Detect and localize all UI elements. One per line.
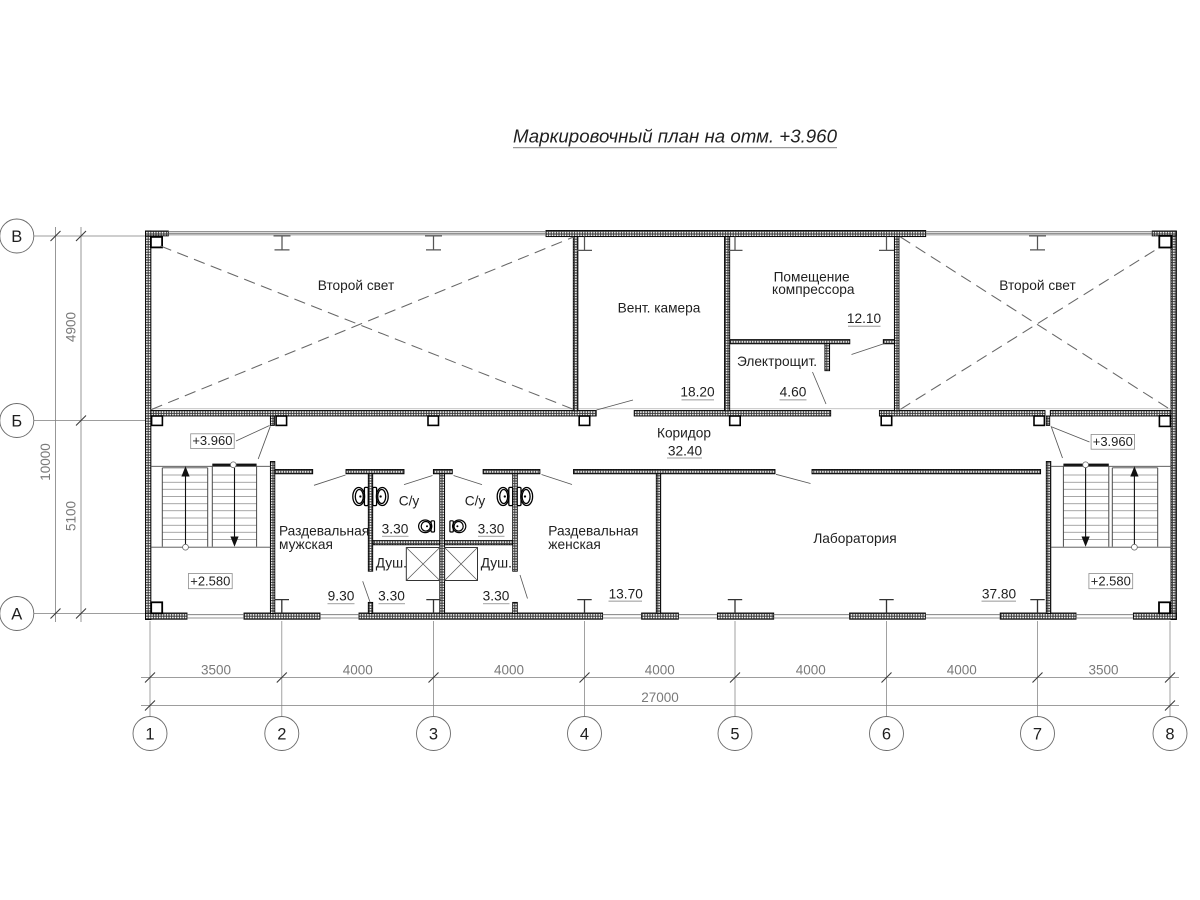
svg-text:2: 2 — [277, 726, 286, 744]
svg-text:А: А — [11, 606, 22, 624]
svg-text:37.80: 37.80 — [982, 586, 1017, 601]
svg-text:+2.580: +2.580 — [190, 573, 230, 588]
svg-text:+3.960: +3.960 — [1093, 434, 1133, 449]
svg-text:С/у: С/у — [399, 494, 420, 509]
svg-text:1: 1 — [145, 726, 154, 744]
svg-text:5100: 5100 — [64, 501, 79, 531]
svg-text:5: 5 — [730, 726, 739, 744]
svg-text:7: 7 — [1033, 726, 1042, 744]
svg-text:+3.960: +3.960 — [192, 433, 232, 448]
svg-text:Лаборатория: Лаборатория — [813, 531, 896, 546]
svg-text:4900: 4900 — [64, 312, 79, 342]
svg-text:3500: 3500 — [1088, 663, 1118, 678]
svg-text:Коридор: Коридор — [657, 425, 711, 440]
svg-text:Б: Б — [11, 413, 22, 431]
svg-text:Маркировочный план на отм. +3.: Маркировочный план на отм. +3.960 — [513, 126, 838, 147]
svg-text:женская: женская — [548, 537, 601, 552]
svg-text:Второй свет: Второй свет — [318, 278, 395, 293]
svg-text:3.30: 3.30 — [478, 521, 505, 536]
svg-text:10000: 10000 — [38, 443, 53, 481]
svg-text:Душ.: Душ. — [376, 555, 407, 570]
svg-text:Второй свет: Второй свет — [999, 278, 1076, 293]
svg-text:27000: 27000 — [641, 690, 679, 705]
svg-text:4000: 4000 — [494, 663, 524, 678]
svg-text:Электрощит.: Электрощит. — [737, 354, 817, 369]
svg-text:3.30: 3.30 — [483, 589, 510, 604]
svg-text:4000: 4000 — [947, 663, 977, 678]
svg-text:8: 8 — [1165, 726, 1174, 744]
svg-text:3500: 3500 — [201, 663, 231, 678]
svg-text:32.40: 32.40 — [668, 443, 703, 458]
svg-text:мужская: мужская — [279, 537, 333, 552]
svg-text:13.70: 13.70 — [609, 586, 644, 601]
svg-text:В: В — [11, 228, 22, 246]
svg-text:6: 6 — [882, 726, 891, 744]
svg-text:Вент. камера: Вент. камера — [618, 301, 701, 316]
svg-text:3.30: 3.30 — [378, 589, 405, 604]
svg-text:4.60: 4.60 — [780, 385, 807, 400]
svg-text:3: 3 — [429, 726, 438, 744]
svg-text:компрессора: компрессора — [772, 282, 855, 297]
svg-text:С/у: С/у — [465, 494, 486, 509]
svg-text:4000: 4000 — [343, 663, 373, 678]
svg-text:+2.580: +2.580 — [1091, 573, 1131, 588]
svg-text:18.20: 18.20 — [680, 385, 715, 400]
svg-text:4: 4 — [580, 726, 589, 744]
svg-text:4000: 4000 — [796, 663, 826, 678]
svg-text:3.30: 3.30 — [382, 521, 409, 536]
svg-text:Душ.: Душ. — [481, 555, 512, 570]
svg-text:12.10: 12.10 — [847, 311, 882, 326]
svg-text:9.30: 9.30 — [328, 589, 355, 604]
svg-text:4000: 4000 — [645, 663, 675, 678]
